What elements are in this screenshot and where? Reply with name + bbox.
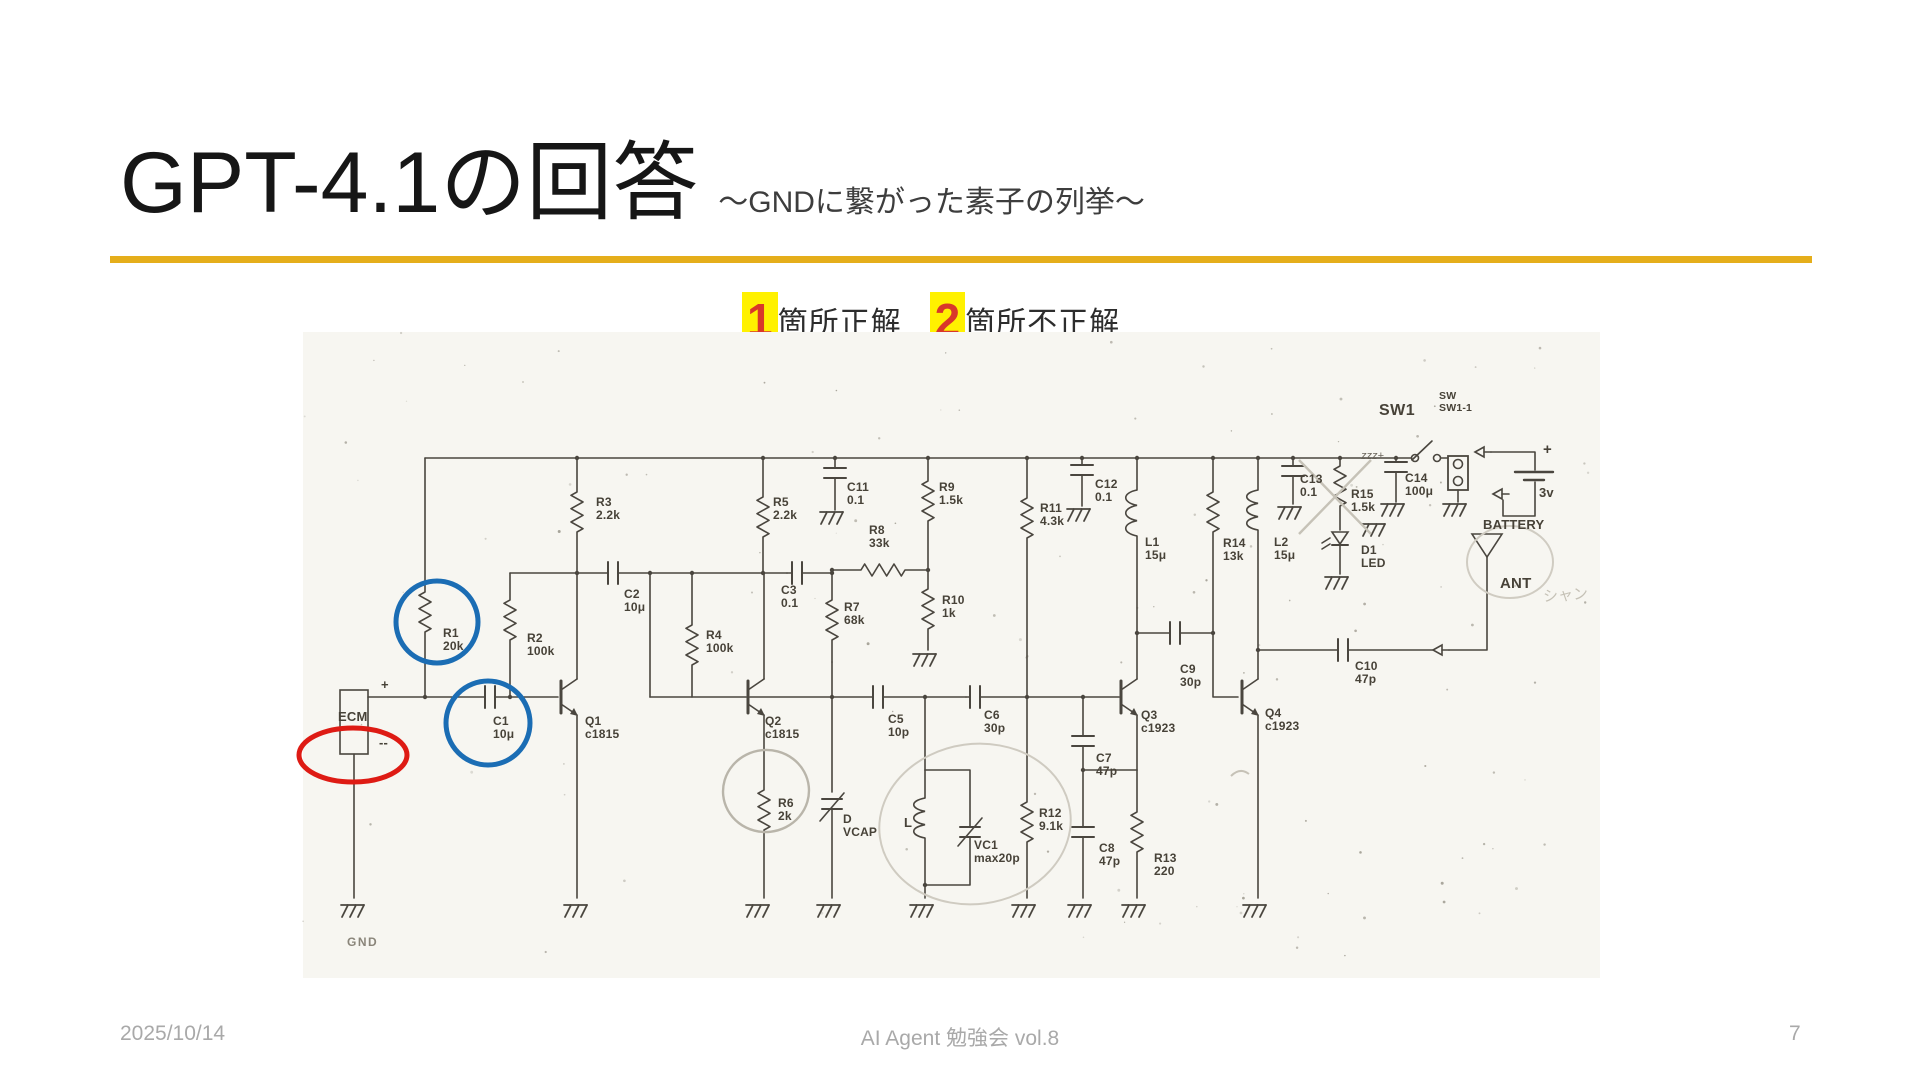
page-title: GPT-4.1の回答	[120, 112, 698, 237]
schematic-drawing	[303, 332, 1600, 978]
handwriting-mark: zzz+	[1361, 450, 1384, 462]
component-label: D1 LED	[1361, 544, 1386, 571]
component-label: 3v	[1539, 486, 1554, 501]
component-label: D VCAP	[843, 813, 877, 840]
component-label: BATTERY	[1483, 518, 1544, 533]
component-label: Q1 c1815	[585, 715, 619, 742]
component-label: SW SW1-1	[1439, 390, 1472, 414]
component-label: R4 100k	[706, 629, 734, 656]
component-label: ECM	[338, 710, 368, 725]
component-label: R10 1k	[942, 594, 965, 621]
pencil-squiggle	[1231, 771, 1249, 776]
component-label: R6 2k	[778, 797, 794, 824]
component-label: Q4 c1923	[1265, 707, 1299, 734]
component-label: SW1	[1379, 402, 1415, 420]
component-label: R11 4.3k	[1040, 502, 1064, 529]
presentation-slide: GPT-4.1の回答 ～GNDに繋がった素子の列挙～ 1 箇所正解 2 箇所不正…	[0, 0, 1920, 1080]
footer-event-name: AI Agent 勉強会 vol.8	[861, 1022, 1059, 1052]
component-label: C6 30p	[984, 709, 1005, 736]
component-label: C12 0.1	[1095, 478, 1118, 505]
component-label: Q3 c1923	[1141, 709, 1175, 736]
component-label: R13 220	[1154, 852, 1177, 879]
annotation-red-ellipse-ecm	[299, 728, 407, 782]
component-label: C7 47p	[1096, 752, 1117, 779]
component-label: C10 47p	[1355, 660, 1378, 687]
component-label: --	[379, 736, 388, 751]
title-row: GPT-4.1の回答 ～GNDに繋がった素子の列挙～	[120, 112, 1145, 237]
component-label: VC1 max20p	[974, 839, 1020, 866]
component-label: R8 33k	[869, 524, 890, 551]
component-label: R1 20k	[443, 627, 464, 654]
component-label: +	[1543, 442, 1552, 459]
component-label: R7 68k	[844, 601, 865, 628]
footer-date: 2025/10/14	[120, 1022, 225, 1046]
component-label: C11 0.1	[847, 481, 869, 508]
footer-page-number: 7	[1789, 1022, 1801, 1046]
component-label: R15 1.5k	[1351, 488, 1375, 515]
component-label: R12 9.1k	[1039, 807, 1063, 834]
handwriting-mark: シャン	[1542, 582, 1588, 606]
annotation-blue-circle-c1	[446, 681, 530, 765]
annotation-blue-circle-r1	[396, 581, 478, 663]
pencil-circle-r6	[719, 746, 813, 837]
title-accent-rule	[110, 256, 1812, 263]
component-label: GND	[347, 936, 378, 949]
component-label: R5 2.2k	[773, 496, 797, 523]
component-label: Q2 c1815	[765, 715, 799, 742]
component-label: C14 100μ	[1405, 472, 1433, 499]
component-label: +	[381, 678, 389, 693]
component-label: C5 10p	[888, 713, 909, 740]
component-label: R14 13k	[1223, 537, 1246, 564]
component-label: C13 0.1	[1300, 473, 1323, 500]
component-label: C2 10μ	[624, 588, 645, 615]
component-label: C3 0.1	[781, 584, 798, 611]
circuit-schematic-scan: R1 20kR2 100kC1 10μQ1 c1815ECM+--GNDR3 2…	[303, 332, 1600, 978]
component-label: C1 10μ	[493, 715, 514, 742]
component-label: L1 15μ	[1145, 536, 1166, 563]
component-label: ANT	[1500, 576, 1531, 593]
component-label: R3 2.2k	[596, 496, 620, 523]
component-label: L2 15μ	[1274, 536, 1295, 563]
component-label: C9 30p	[1180, 663, 1201, 690]
component-label: R2 100k	[527, 632, 555, 659]
component-label: R9 1.5k	[939, 481, 963, 508]
component-label: C8 47p	[1099, 842, 1120, 869]
component-label: L	[904, 816, 912, 831]
page-subtitle: ～GNDに繋がった素子の列挙～	[718, 177, 1145, 221]
